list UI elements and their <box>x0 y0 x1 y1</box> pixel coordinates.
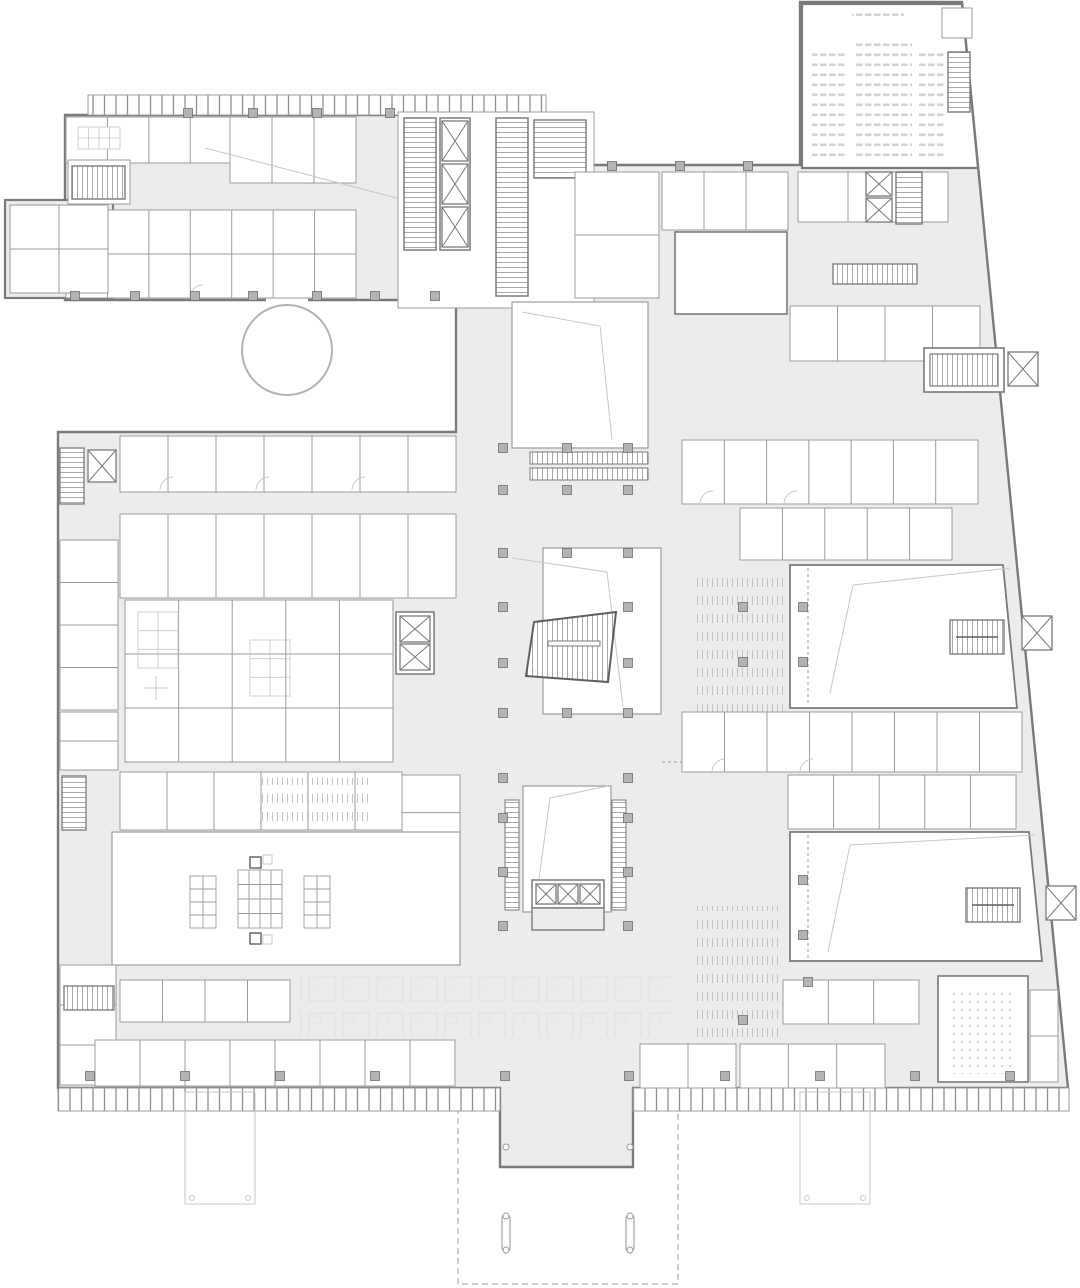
plaza-dot <box>190 1196 195 1201</box>
plaza-column <box>626 1214 634 1252</box>
kiosk <box>250 857 261 868</box>
stair-rail <box>548 641 600 646</box>
facade-colonnade-south-west <box>58 1088 500 1111</box>
rooms-se <box>1030 990 1058 1082</box>
floor-plan-svg <box>0 0 1080 1288</box>
lb-shelves <box>258 778 370 824</box>
rooms-band-3 <box>682 712 1022 772</box>
tables <box>238 870 282 928</box>
rooms-s-mid <box>640 1044 736 1088</box>
column-base <box>503 1247 509 1253</box>
lift <box>536 884 556 904</box>
auditorium-stair <box>948 52 970 112</box>
south-lobby <box>532 908 604 930</box>
column-base <box>627 1213 633 1219</box>
lb-stair-w <box>62 776 86 830</box>
rooms-lb-5 <box>95 1040 455 1086</box>
floor-plan <box>0 0 1080 1288</box>
service-lift <box>404 118 436 250</box>
auditorium-seats <box>918 48 944 160</box>
plaza-dot <box>246 1196 251 1201</box>
pod-stair <box>930 354 998 386</box>
annex-rooms <box>10 205 108 293</box>
tables <box>190 876 216 928</box>
stage-strip <box>852 9 904 18</box>
rooms-core-east <box>575 172 659 298</box>
kiosk <box>250 933 261 944</box>
plan-shapes <box>5 2 1076 1284</box>
lift <box>400 644 430 670</box>
auditorium-seats <box>854 42 912 162</box>
lb-stair-nw <box>60 448 84 504</box>
ne-stair <box>833 264 917 284</box>
rooms-lb-4 <box>120 980 290 1022</box>
round-pavilion <box>242 305 332 395</box>
rooms-band-4 <box>788 775 1016 829</box>
core-stair <box>534 120 586 178</box>
column-base <box>627 1247 633 1253</box>
rooms-lb-2 <box>120 514 456 598</box>
lift <box>442 121 468 161</box>
escalator <box>530 468 648 480</box>
plaza-dot <box>805 1196 810 1201</box>
lift <box>88 450 116 482</box>
plaza-column <box>502 1214 510 1252</box>
escalator <box>530 452 648 464</box>
rooms-wing-upper-right <box>230 117 356 183</box>
stacks <box>694 906 782 1038</box>
pod-lift <box>1022 616 1052 650</box>
open-hall <box>112 832 460 965</box>
auditorium-seats <box>812 48 846 160</box>
hall-north <box>675 232 787 314</box>
rooms-wing-south <box>66 210 356 298</box>
classroom-seats <box>948 990 1014 1074</box>
plaza-dot <box>861 1196 866 1201</box>
lift <box>400 616 430 642</box>
auditorium-room-ne <box>942 8 972 38</box>
pod-lift <box>1046 886 1076 920</box>
atrium-north-void <box>512 302 648 448</box>
lb-stair-s <box>64 986 114 1010</box>
lift <box>558 884 578 904</box>
rooms-north-band <box>662 172 788 230</box>
tables <box>304 876 330 928</box>
pod-lift <box>1008 352 1038 386</box>
atrium-stair <box>526 612 616 682</box>
rooms-band-1 <box>682 440 978 504</box>
service-lift <box>496 118 528 296</box>
rooms-band-5b <box>740 1044 885 1088</box>
lift <box>442 207 468 247</box>
rooms-band-2 <box>740 508 952 560</box>
vestibule-dot <box>503 1144 509 1150</box>
vestibule-dot <box>627 1144 633 1150</box>
facade-colonnade-south-east <box>633 1088 1069 1111</box>
lift <box>866 198 892 222</box>
lab-grid <box>125 600 393 762</box>
wing-stair <box>72 166 125 199</box>
south-aud-stair <box>896 172 922 224</box>
rooms-lb-west-2 <box>60 712 118 770</box>
kiosk <box>263 935 272 944</box>
meeting-table <box>78 127 120 149</box>
lift <box>442 164 468 204</box>
rooms-lb-west <box>60 540 118 710</box>
column-base <box>503 1213 509 1219</box>
kiosk <box>263 855 272 864</box>
rooms-lb-1 <box>120 436 456 492</box>
lift <box>580 884 600 904</box>
workstations <box>300 968 670 1036</box>
lift <box>866 172 892 196</box>
